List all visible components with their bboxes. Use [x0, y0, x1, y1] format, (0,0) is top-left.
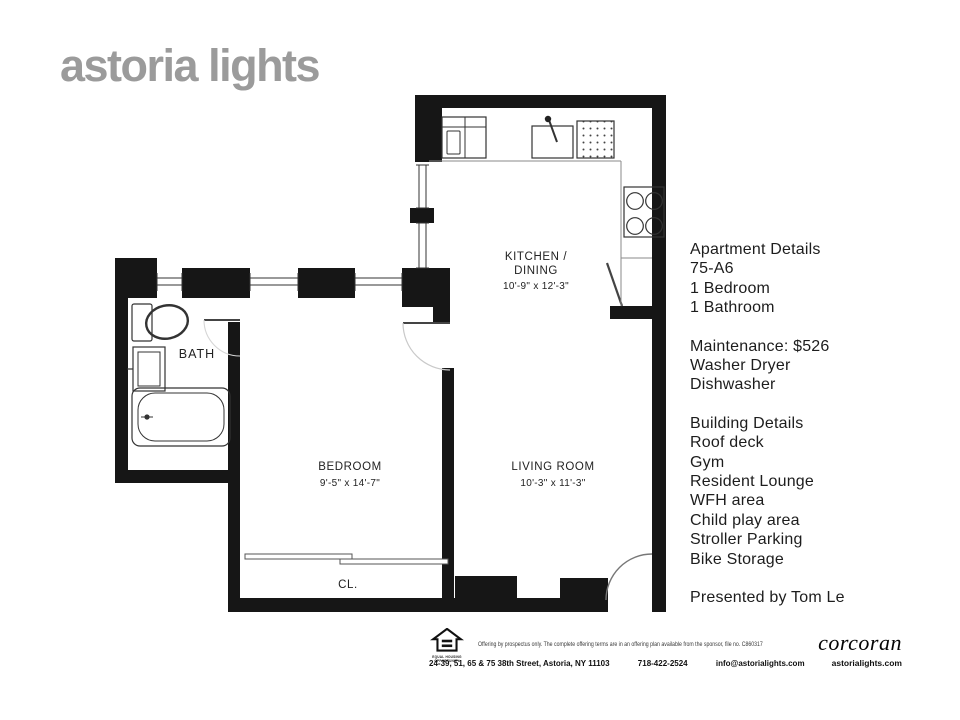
building-details-block: Building Details Roof deck Gym Resident … — [690, 414, 940, 569]
wall — [410, 208, 434, 223]
corcoran-logo: corcoran — [818, 630, 902, 656]
entry-door-arc — [606, 554, 652, 600]
window — [416, 165, 429, 208]
wall — [115, 268, 128, 483]
kitchen-label: KITCHEN / — [505, 251, 567, 263]
kitchen-sink-fixture — [532, 116, 573, 158]
details-line: 1 Bathroom — [690, 298, 940, 317]
wall — [298, 268, 355, 298]
address: 24-39, 51, 65 & 75 38th Street, Astoria,… — [429, 659, 610, 668]
washer-dryer-fixture — [442, 117, 486, 158]
building-heading: Building Details — [690, 414, 940, 433]
kitchen-dimensions: 10'-9" x 12'-3" — [503, 281, 569, 292]
doors — [204, 263, 652, 600]
kitchen-label-2: DINING — [514, 265, 558, 277]
living-room-dimensions: 10'-3" x 11'-3" — [520, 478, 585, 489]
wall — [455, 576, 517, 600]
bathroom-sink-fixture — [127, 347, 165, 391]
window — [157, 273, 182, 291]
dishwasher-fixture — [577, 121, 614, 158]
window — [355, 273, 402, 291]
toilet-fixture — [132, 301, 191, 342]
wall — [652, 95, 666, 612]
details-line: WFH area — [690, 491, 940, 510]
details-line: Roof deck — [690, 433, 940, 452]
apartment-details-block: Apartment Details 75-A6 1 Bedroom 1 Bath… — [690, 240, 940, 318]
details-line: Resident Lounge — [690, 472, 940, 491]
offering-disclaimer: Offering by prospectus only. The complet… — [478, 641, 822, 648]
closet-label: CL. — [338, 579, 358, 591]
wall — [560, 578, 608, 600]
unit-number: 75-A6 — [690, 259, 940, 278]
fixtures — [127, 116, 664, 564]
bedroom-label: BEDROOM — [318, 461, 382, 473]
room-labels: KITCHEN / DINING 10'-9" x 12'-3" BATH BE… — [179, 251, 595, 591]
details-heading: Apartment Details — [690, 240, 940, 259]
bedroom-dimensions: 9'-5" x 14'-7" — [320, 478, 380, 489]
details-line: Washer Dryer — [690, 356, 940, 375]
closet-sliding-doors — [245, 554, 448, 564]
maintenance-line: Maintenance: $526 — [690, 337, 940, 356]
wall — [228, 598, 608, 612]
details-line: Dishwasher — [690, 375, 940, 394]
wall — [182, 268, 250, 298]
contact-line: 24-39, 51, 65 & 75 38th Street, Astoria,… — [429, 659, 805, 668]
details-line: Stroller Parking — [690, 530, 940, 549]
wall — [228, 470, 240, 612]
details-line: Gym — [690, 453, 940, 472]
details-line: Bike Storage — [690, 550, 940, 569]
presented-by-block: Presented by Tom Le — [690, 588, 940, 607]
wall — [115, 470, 240, 483]
bedroom-door-arc — [403, 323, 450, 370]
equal-housing-icon — [430, 628, 464, 654]
phone-number: 718-422-2524 — [638, 659, 688, 668]
window — [250, 273, 298, 291]
wall — [440, 95, 666, 108]
details-line: Child play area — [690, 511, 940, 530]
flyer: astoria lights — [0, 0, 960, 720]
apartment-details-panel: Apartment Details 75-A6 1 Bedroom 1 Bath… — [690, 240, 940, 627]
window — [416, 223, 429, 268]
website-url: astorialights.com — [832, 658, 902, 668]
wall — [433, 268, 450, 322]
bathtub-fixture — [132, 388, 230, 446]
presented-by-line: Presented by Tom Le — [690, 588, 940, 607]
email-address: info@astorialights.com — [716, 659, 805, 668]
details-line: 1 Bedroom — [690, 279, 940, 298]
living-room-label: LIVING ROOM — [511, 461, 594, 473]
bath-label: BATH — [179, 347, 215, 361]
wall — [610, 306, 666, 319]
kitchen-door-leaf — [607, 263, 622, 306]
wall — [415, 95, 442, 162]
features-block: Maintenance: $526 Washer Dryer Dishwashe… — [690, 337, 940, 395]
